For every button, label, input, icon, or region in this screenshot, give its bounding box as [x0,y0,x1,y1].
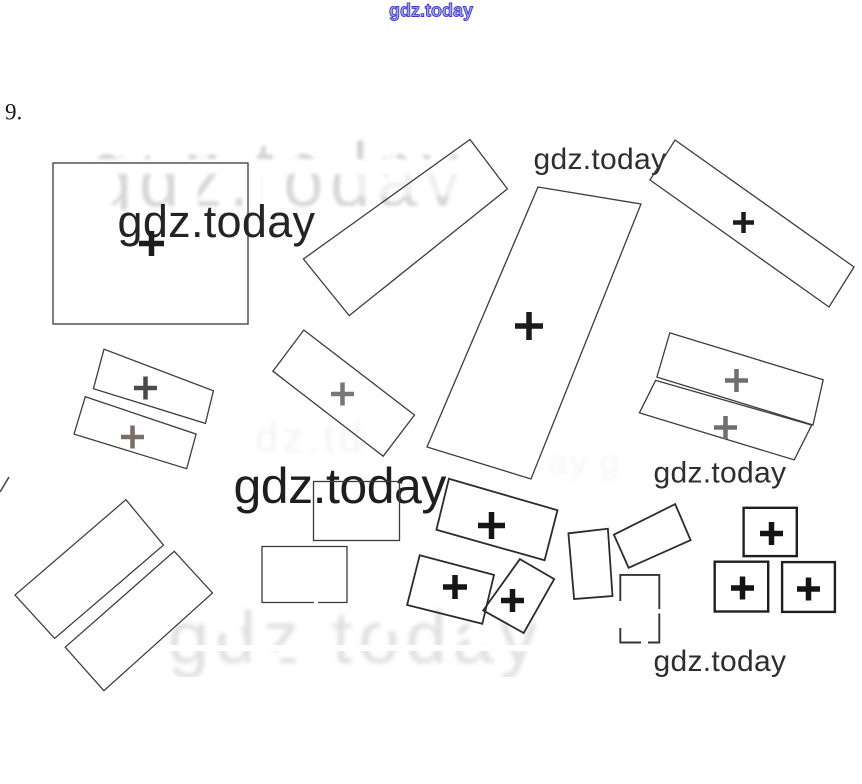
svg-text:ay.g: ay.g [548,444,622,482]
svg-text:gdz.today: gdz.today [654,457,787,490]
svg-text:gdz.today: gdz.today [389,1,473,21]
svg-text:gdz.today: gdz.today [654,645,787,678]
svg-text:dz.td: dz.td [255,414,366,461]
svg-text:gdz.today: gdz.today [118,196,316,247]
svg-text:gdz.today: gdz.today [534,143,667,176]
svg-text:9.: 9. [5,100,22,125]
svg-text:gdz.today: gdz.today [234,458,447,514]
